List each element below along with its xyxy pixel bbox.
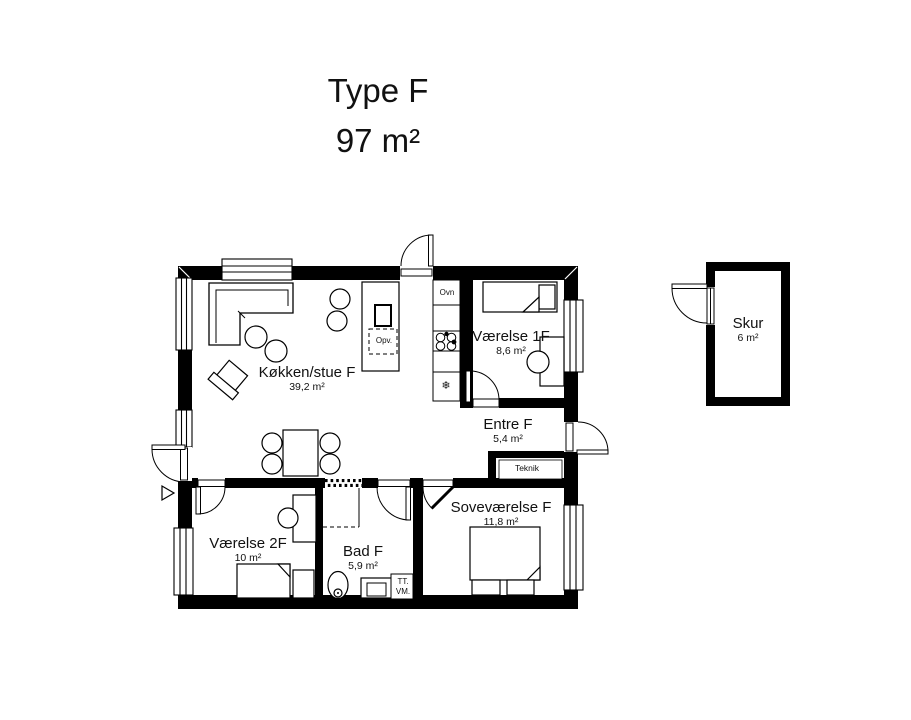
bathroom-sink (361, 578, 392, 598)
room-label-entre: Entre F 5,4 m² (483, 416, 532, 446)
door-vaerelse2 (196, 480, 225, 514)
sovevaerelse-furniture (470, 527, 540, 595)
door-left-terrace (152, 445, 192, 482)
window-left-hall (176, 410, 192, 447)
window-right-sovevaerelse (564, 505, 583, 590)
oven-label: Ovn (440, 288, 455, 298)
dining-set (262, 430, 340, 476)
toilet (328, 572, 348, 599)
room-label-vaerelse2: Værelse 2F 10 m² (209, 535, 287, 565)
window-left-living (176, 278, 192, 350)
shed-door-leaf (672, 284, 707, 289)
room-label-sovevaerelse: Soveværelse F 11,8 m² (451, 499, 552, 529)
kitchen-island (362, 282, 399, 371)
floor-plan-page: Type F 97 m² (0, 0, 911, 720)
shed-door-swing (672, 288, 707, 323)
room-label-kokken-stue: Køkken/stue F 39,2 m² (259, 364, 356, 394)
window-right-vaerelse1 (564, 300, 583, 372)
washer-label: VM. (396, 587, 410, 597)
dishwasher-label: Opv. (376, 336, 392, 346)
door-sovevaerelse (423, 480, 453, 509)
room-label-bad: Bad F 5,9 m² (343, 543, 383, 573)
laundry-labels: TT. VM. (396, 577, 410, 596)
door-top-terrace (400, 235, 433, 280)
island-sink (375, 305, 391, 326)
door-bad (377, 480, 411, 520)
room-label-teknik: Teknik (515, 464, 539, 474)
room-label-vaerelse1: Værelse 1F 8,6 m² (472, 328, 550, 358)
door-vaerelse1 (466, 371, 499, 407)
direction-marker (162, 486, 174, 500)
shower-wall-hatch (325, 478, 362, 488)
coffee-tables (245, 326, 287, 362)
window-top-living (222, 259, 292, 280)
dryer-label: TT. (396, 577, 410, 587)
dining-table (283, 430, 318, 476)
shower-enclosure (323, 488, 359, 527)
freezer-icon: ❄ (441, 381, 450, 392)
door-entrance (564, 422, 608, 454)
floor-plan-drawing (0, 0, 911, 720)
armchair (208, 358, 251, 400)
bar-stools (327, 289, 350, 331)
nightstand-vaerelse2 (293, 570, 314, 598)
chair-vaerelse2 (278, 508, 298, 528)
shed (672, 262, 790, 406)
room-label-skur: Skur 6 m² (733, 315, 764, 345)
double-bed (470, 527, 540, 580)
window-left-vaerelse2 (174, 528, 193, 595)
